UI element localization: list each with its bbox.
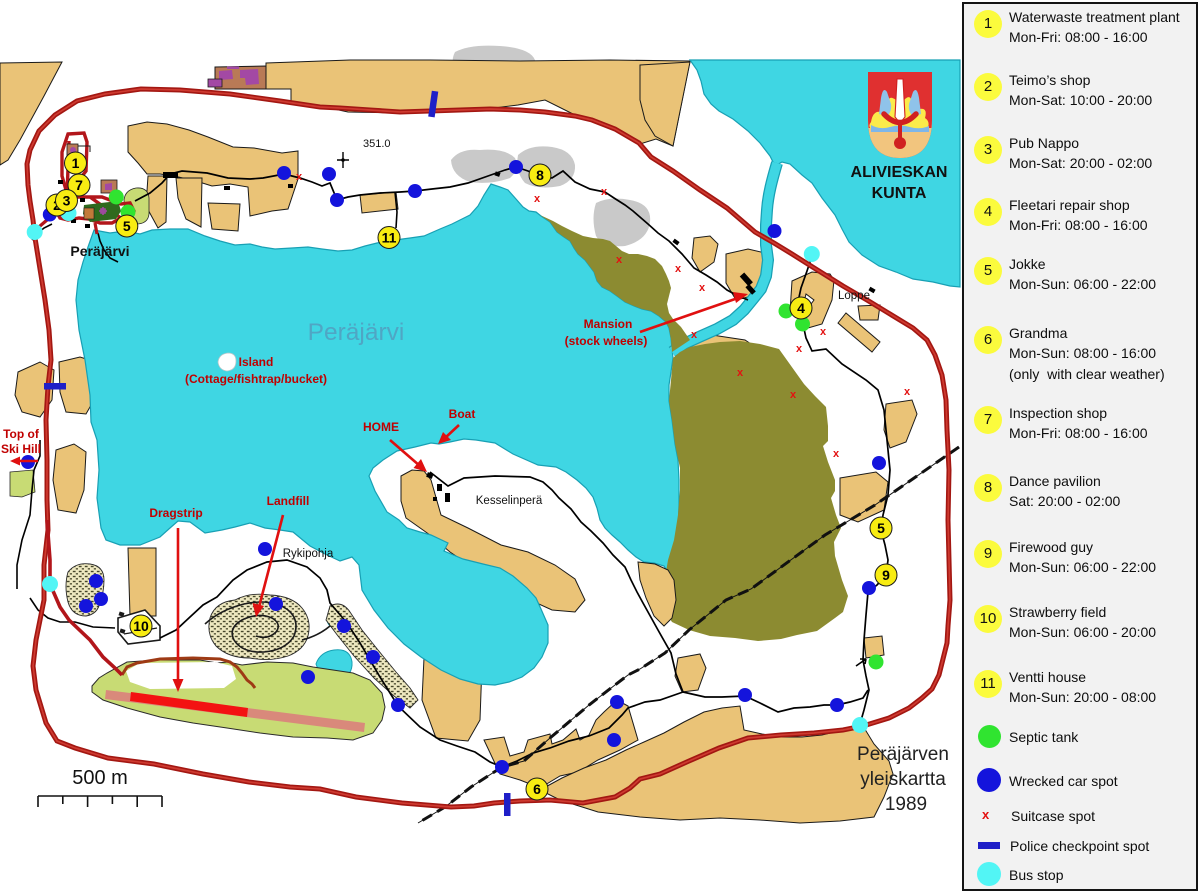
svg-text:Boat: Boat xyxy=(449,407,476,421)
svg-text:Ski Hill: Ski Hill xyxy=(1,442,41,456)
svg-text:x: x xyxy=(691,329,698,341)
svg-text:Peräjärvi: Peräjärvi xyxy=(70,243,129,259)
svg-text:HOME: HOME xyxy=(363,420,399,434)
svg-text:x: x xyxy=(820,326,827,338)
svg-text:Rykipohja: Rykipohja xyxy=(283,548,334,560)
svg-text:x: x xyxy=(796,343,803,355)
svg-text:Top of: Top of xyxy=(3,427,40,441)
svg-text:Island: Island xyxy=(239,355,274,369)
svg-text:5: 5 xyxy=(877,520,885,536)
svg-text:Peräjärvi: Peräjärvi xyxy=(308,319,405,346)
svg-text:(stock wheels): (stock wheels) xyxy=(565,334,648,348)
svg-text:ALIVIESKAN: ALIVIESKAN xyxy=(851,164,948,181)
svg-text:5: 5 xyxy=(123,218,131,234)
svg-text:8: 8 xyxy=(536,167,544,183)
svg-text:Mansion: Mansion xyxy=(584,317,633,331)
svg-text:351.0: 351.0 xyxy=(363,138,391,150)
svg-text:11: 11 xyxy=(382,230,397,246)
svg-text:1: 1 xyxy=(72,155,80,171)
svg-text:Landfill: Landfill xyxy=(267,494,310,508)
svg-text:x: x xyxy=(790,389,797,401)
svg-text:Kesselinperä: Kesselinperä xyxy=(476,495,543,507)
svg-text:x: x xyxy=(699,282,706,294)
svg-text:x: x xyxy=(534,193,541,205)
svg-text:x: x xyxy=(616,254,623,266)
svg-text:10: 10 xyxy=(133,618,149,634)
svg-text:4: 4 xyxy=(797,300,805,316)
svg-text:KUNTA: KUNTA xyxy=(872,185,927,202)
svg-text:(Cottage/fishtrap/bucket): (Cottage/fishtrap/bucket) xyxy=(185,372,327,386)
svg-text:1989: 1989 xyxy=(885,794,927,815)
svg-text:x: x xyxy=(737,367,744,379)
svg-text:Dragstrip: Dragstrip xyxy=(149,506,202,520)
svg-text:x: x xyxy=(675,263,682,275)
svg-text:x: x xyxy=(296,171,303,183)
svg-text:500 m: 500 m xyxy=(72,767,128,789)
svg-text:x: x xyxy=(833,448,840,460)
svg-text:x: x xyxy=(904,386,911,398)
svg-text:3: 3 xyxy=(63,193,71,209)
svg-text:9: 9 xyxy=(882,567,890,583)
svg-text:yleiskartta: yleiskartta xyxy=(860,769,946,790)
svg-text:x: x xyxy=(601,186,608,198)
svg-text:6: 6 xyxy=(533,781,541,797)
svg-text:Loppe: Loppe xyxy=(838,290,870,302)
svg-text:7: 7 xyxy=(75,177,83,193)
svg-text:Peräjärven: Peräjärven xyxy=(857,744,949,765)
